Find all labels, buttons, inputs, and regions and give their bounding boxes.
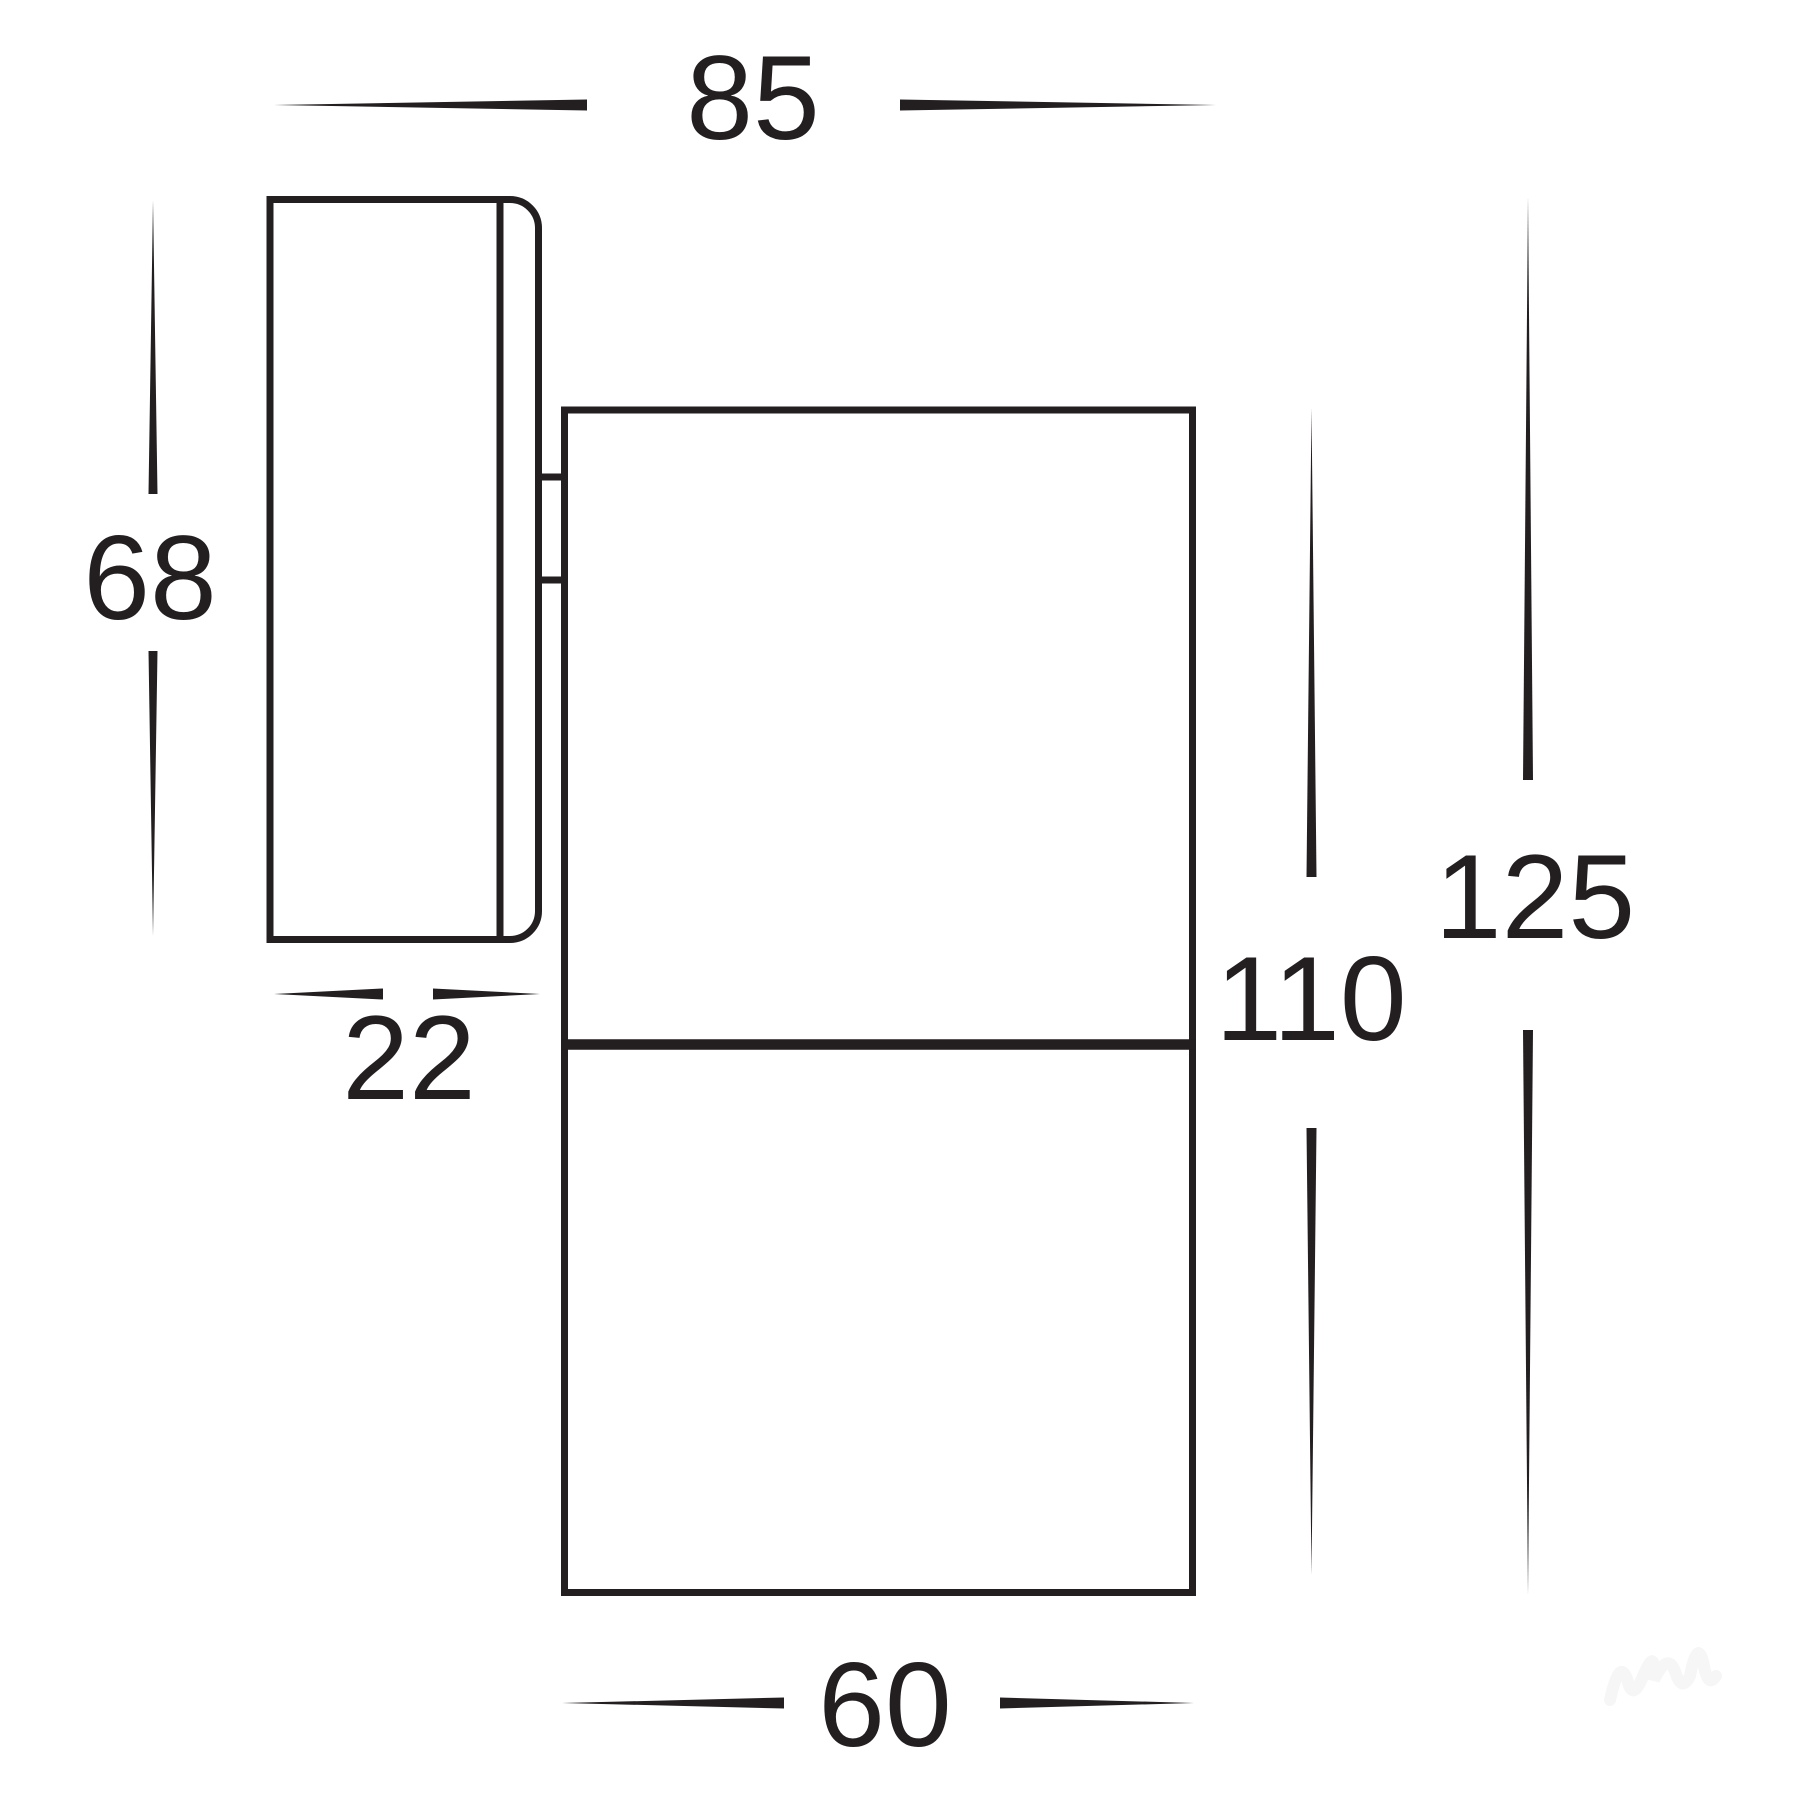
svg-text:125: 125 — [1435, 830, 1635, 964]
svg-text:22: 22 — [342, 991, 475, 1125]
svg-text:110: 110 — [1215, 932, 1406, 1066]
svg-text:68: 68 — [83, 511, 216, 645]
svg-text:85: 85 — [686, 31, 819, 165]
svg-text:60: 60 — [818, 1638, 951, 1772]
